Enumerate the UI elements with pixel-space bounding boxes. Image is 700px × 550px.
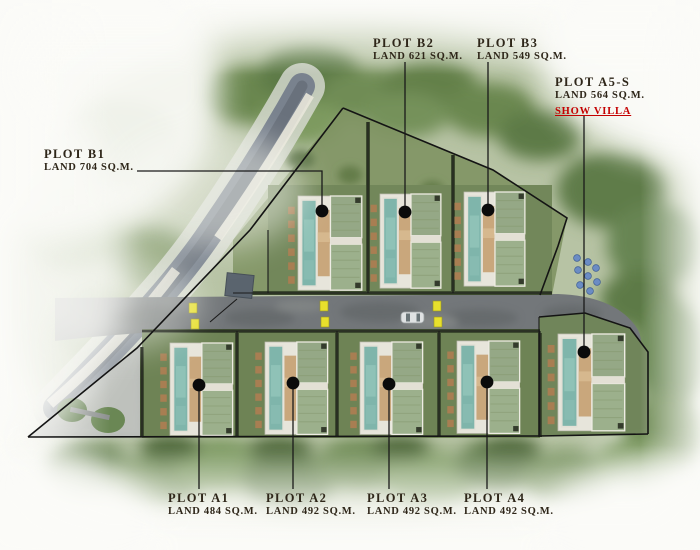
marker-dot-a5s (578, 346, 591, 359)
marker-dot-a4 (481, 376, 494, 389)
car-icon (401, 312, 424, 323)
marker-dot-a3 (383, 378, 396, 391)
master-plan: PLOT B1 LAND 704 SQ.M. PLOT B2 LAND 621 … (0, 0, 700, 550)
utility-shed (225, 273, 254, 299)
marker-dot-b1 (316, 205, 329, 218)
marker-dot-b3 (482, 204, 495, 217)
site-plan-illustration (0, 0, 700, 550)
marker-dot-a1 (193, 379, 206, 392)
marker-dot-b2 (399, 206, 412, 219)
marker-dot-a2 (287, 377, 300, 390)
